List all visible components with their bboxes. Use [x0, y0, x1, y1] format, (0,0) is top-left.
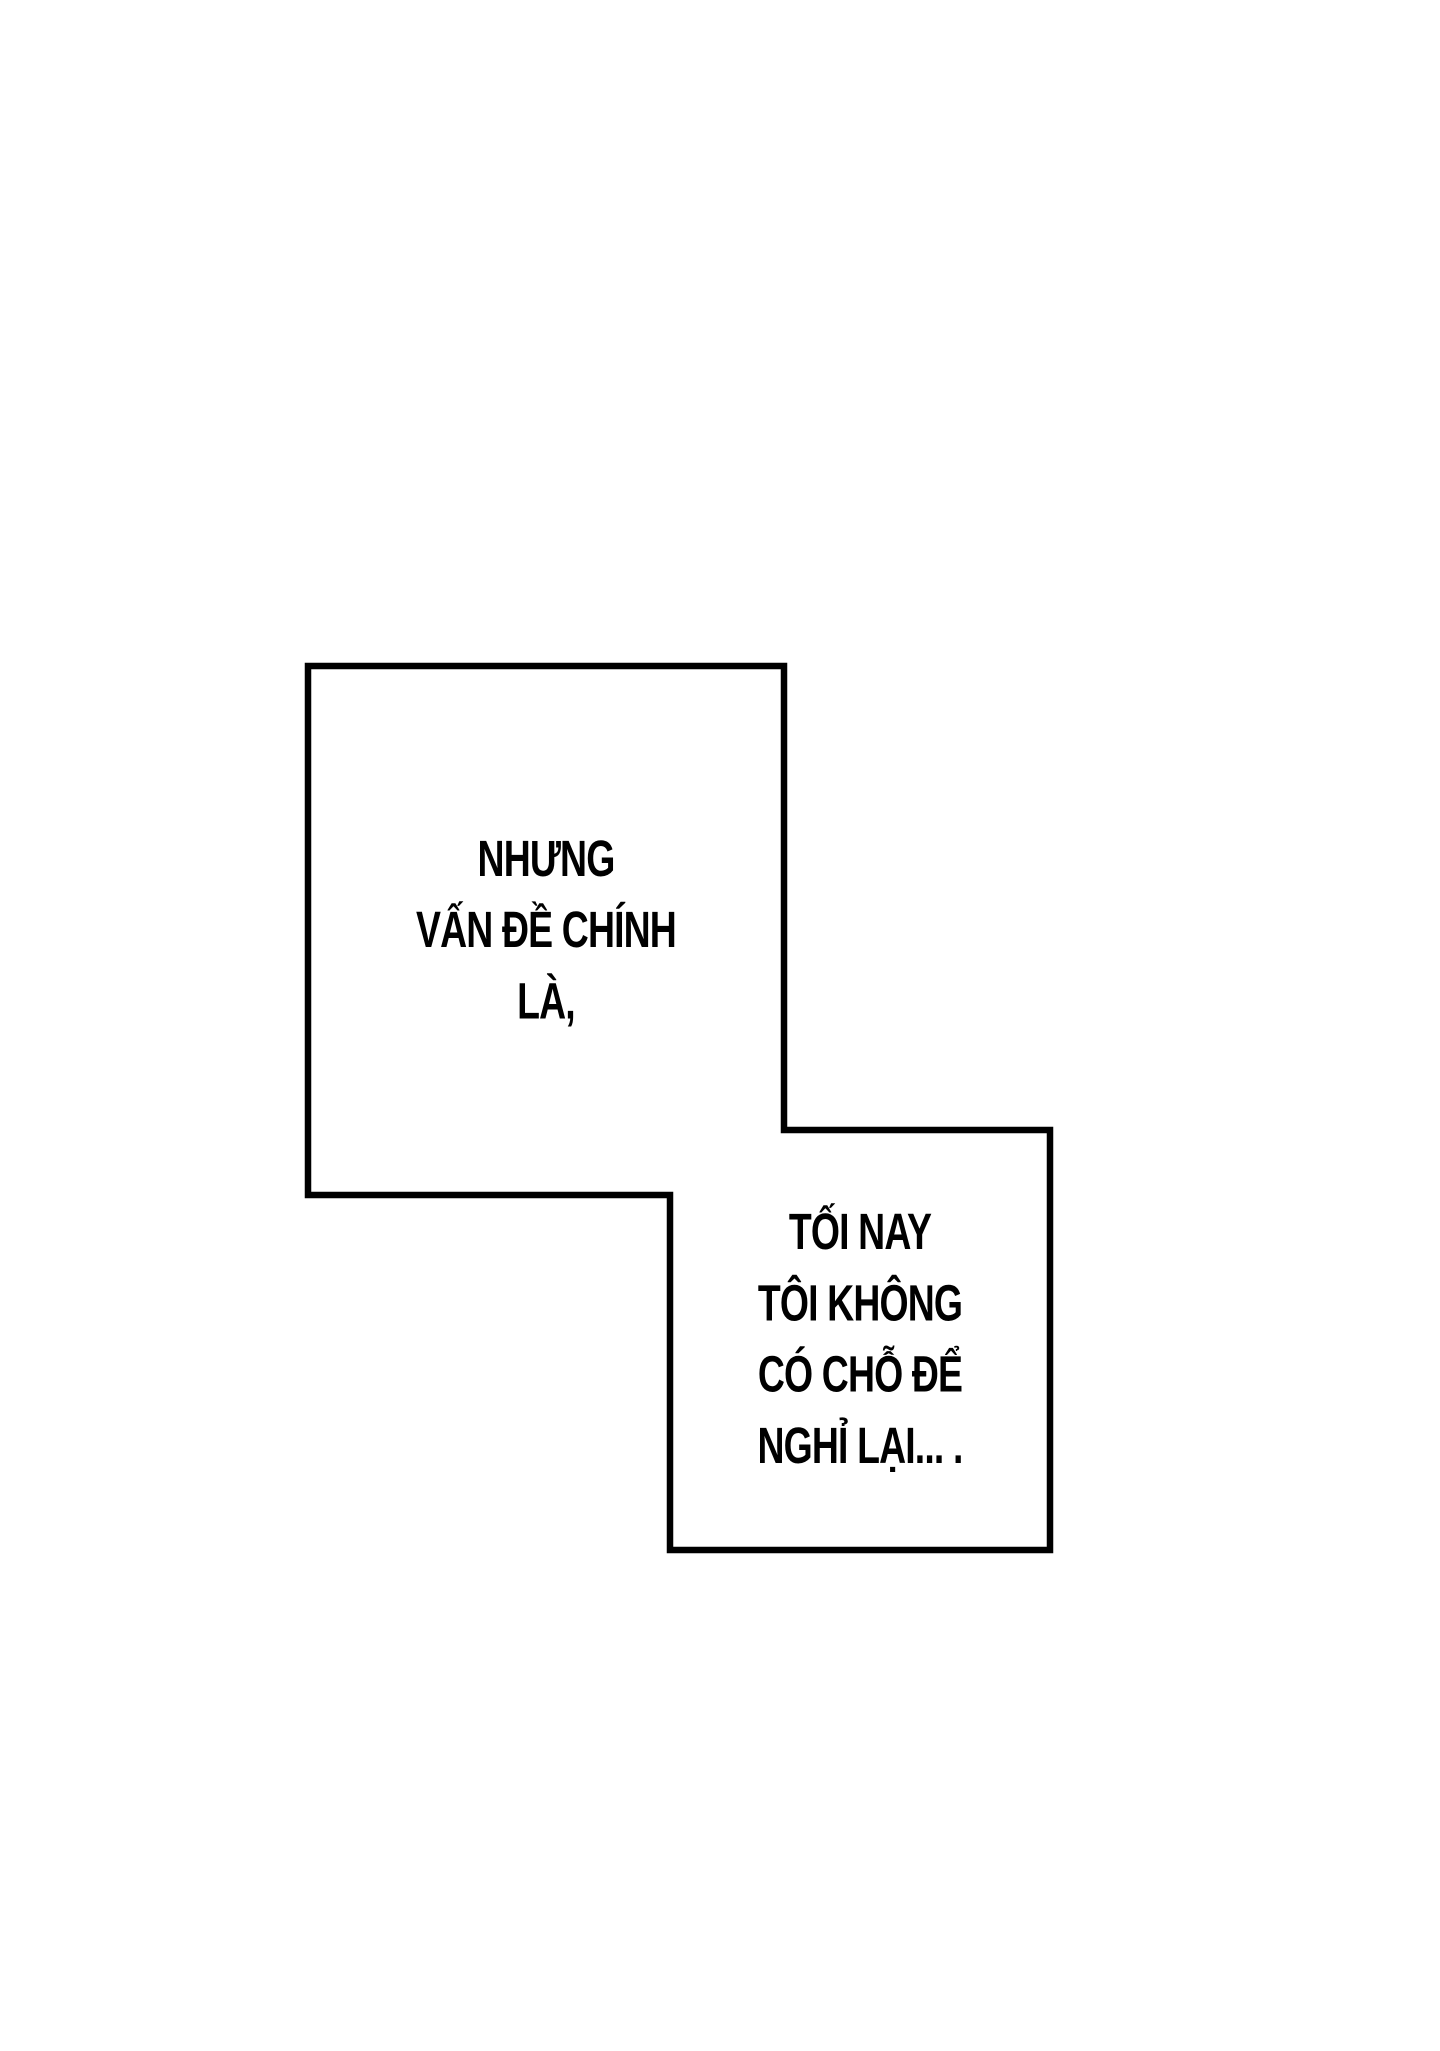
speech-line: CÓ CHỖ ĐỂ [758, 1340, 962, 1411]
speech-line: TÔI KHÔNG [758, 1269, 962, 1340]
comic-page: NHƯNG VẤN ĐỀ CHÍNH LÀ, TỐI NAY TÔI KHÔNG… [0, 0, 1440, 2051]
speech-line: TỐI NAY [789, 1197, 931, 1268]
speech-line: NGHỈ LẠI... . [757, 1411, 962, 1482]
speech-line: VẤN ĐỀ CHÍNH [416, 895, 676, 966]
speech-line: NHƯNG [478, 824, 615, 895]
speech-text-panel-1: NHƯNG VẤN ĐỀ CHÍNH LÀ, [346, 630, 746, 1231]
speech-text-panel-2: TỐI NAY TÔI KHÔNG CÓ CHỖ ĐỂ NGHỈ LẠI... … [701, 1102, 1019, 1578]
speech-line: LÀ, [517, 966, 575, 1037]
